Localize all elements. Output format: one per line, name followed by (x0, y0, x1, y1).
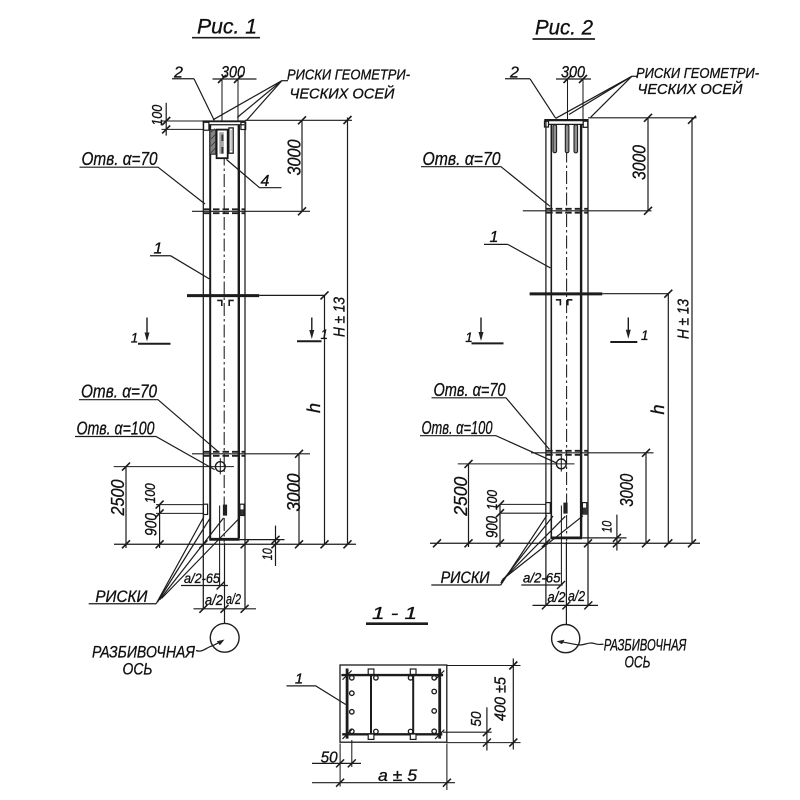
svg-text:а/2: а/2 (568, 589, 585, 605)
svg-text:Отв. α=100: Отв. α=100 (422, 417, 493, 438)
svg-text:100: 100 (484, 489, 501, 510)
svg-text:Отв. α=70: Отв. α=70 (434, 379, 507, 400)
svg-text:а/2: а/2 (548, 590, 566, 606)
svg-text:4: 4 (261, 173, 270, 190)
svg-text:1: 1 (295, 671, 303, 688)
svg-text:100: 100 (142, 483, 159, 504)
svg-text:ОСЬ: ОСЬ (625, 652, 651, 671)
svg-text:1: 1 (154, 241, 163, 258)
svg-text:400 ±5: 400 ±5 (493, 677, 510, 721)
svg-text:3000: 3000 (285, 140, 305, 176)
svg-text:900: 900 (482, 516, 501, 538)
svg-text:Рис. 1: Рис. 1 (197, 16, 257, 39)
svg-text:10: 10 (259, 548, 275, 560)
svg-text:РИСКИ ГЕОМЕТРИ-: РИСКИ ГЕОМЕТРИ- (636, 65, 759, 82)
svg-text:1: 1 (641, 328, 649, 343)
svg-text:h: h (648, 404, 668, 414)
svg-text:900: 900 (141, 513, 160, 536)
svg-text:10: 10 (599, 521, 615, 533)
svg-text:300: 300 (221, 63, 245, 82)
svg-text:ЧЕСКИХ ОСЕЙ: ЧЕСКИХ ОСЕЙ (290, 85, 395, 103)
svg-text:Отв. α=70: Отв. α=70 (82, 148, 159, 169)
svg-text:Отв. α=70: Отв. α=70 (81, 381, 158, 402)
svg-text:а/2: а/2 (226, 592, 241, 608)
svg-text:ОСЬ: ОСЬ (123, 659, 153, 678)
svg-text:Отв. α=70: Отв. α=70 (423, 148, 502, 169)
svg-text:1: 1 (131, 331, 139, 346)
svg-text:1 - 1: 1 - 1 (372, 603, 417, 623)
svg-text:300: 300 (561, 63, 585, 82)
svg-text:а/2-65: а/2-65 (184, 570, 220, 586)
svg-text:а/2-65: а/2-65 (523, 570, 561, 586)
svg-text:а/2: а/2 (205, 593, 223, 609)
svg-text:РИСКИ: РИСКИ (441, 569, 490, 587)
svg-text:Отв. α=100: Отв. α=100 (77, 418, 156, 439)
svg-text:h: h (304, 403, 324, 413)
svg-text:Н ± 13: Н ± 13 (331, 297, 348, 337)
svg-text:3000: 3000 (630, 145, 650, 180)
svg-text:ЧЕСКИХ ОСЕЙ: ЧЕСКИХ ОСЕЙ (638, 80, 743, 98)
svg-text:Н ± 13: Н ± 13 (676, 299, 693, 339)
svg-text:3000: 3000 (617, 474, 637, 507)
svg-text:1: 1 (490, 229, 499, 246)
svg-text:Рис. 2: Рис. 2 (535, 17, 593, 40)
svg-text:100: 100 (149, 104, 166, 126)
svg-text:50: 50 (468, 711, 485, 727)
svg-text:2500: 2500 (108, 480, 128, 517)
svg-text:3000: 3000 (284, 474, 304, 512)
svg-text:РИСКИ ГЕОМЕТРИ-: РИСКИ ГЕОМЕТРИ- (287, 67, 410, 84)
svg-text:2500: 2500 (451, 477, 471, 517)
